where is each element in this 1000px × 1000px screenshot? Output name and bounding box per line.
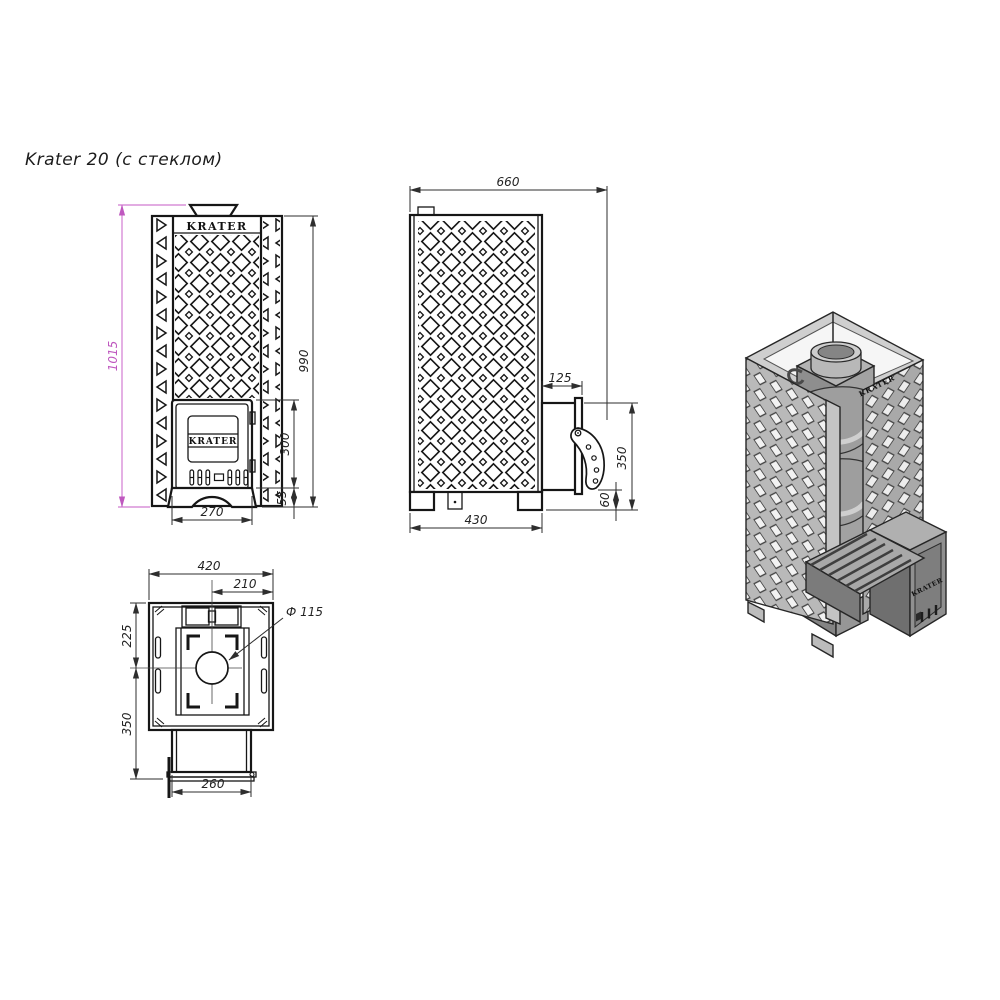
- isometric-view: KRATER KRATER: [746, 312, 946, 657]
- dim-tunnel-height: 350: [615, 446, 629, 469]
- dim-base-height: 55: [275, 490, 289, 505]
- front-view: KRATER KRATER: [106, 205, 318, 525]
- dim-tunnel-width: 260: [202, 777, 225, 791]
- top-view: 420 210 225 350 260 Ф 115: [120, 559, 323, 798]
- drawing-title: Krater 20 (с стеклом): [25, 150, 223, 170]
- lattice-center-panel: [175, 235, 259, 398]
- iso-foot: [812, 634, 833, 657]
- front-top-logo: KRATER: [186, 220, 247, 233]
- lattice-left-column: [154, 218, 171, 504]
- dim-back-to-center: 225: [120, 625, 134, 648]
- dim-chimney-offset: 210: [234, 577, 257, 591]
- dim-center-to-front: 350: [120, 712, 134, 735]
- dim-base-depth: 430: [465, 513, 488, 527]
- side-view: 660 125 350 60 430: [410, 175, 638, 533]
- door-logo: KRATER: [189, 437, 238, 447]
- dim-total-height: 1015: [106, 341, 120, 372]
- dim-tunnel-protrusion: 125: [549, 371, 572, 385]
- damper-housing: [418, 207, 434, 215]
- chimney-funnel: [190, 205, 237, 216]
- dim-door-height: 300: [278, 432, 292, 455]
- lattice-right-column: [263, 218, 280, 504]
- leg-back: [410, 492, 434, 510]
- lattice-side-panel: [418, 221, 535, 489]
- dim-chimney-diameter: Ф 115: [286, 605, 323, 619]
- chimney-opening: [196, 652, 228, 684]
- drawing-sheet: Krater 20 (с стеклом): [0, 0, 1000, 1000]
- tunnel-top: [172, 730, 251, 772]
- fuel-tunnel: [542, 403, 577, 490]
- leg-front: [518, 492, 542, 510]
- dim-total-depth: 660: [497, 175, 520, 189]
- dim-door-width: 270: [201, 505, 224, 519]
- dim-handle-clearance: 60: [598, 492, 612, 508]
- dim-total-width: 420: [198, 559, 221, 573]
- dim-body-height: 990: [297, 349, 311, 372]
